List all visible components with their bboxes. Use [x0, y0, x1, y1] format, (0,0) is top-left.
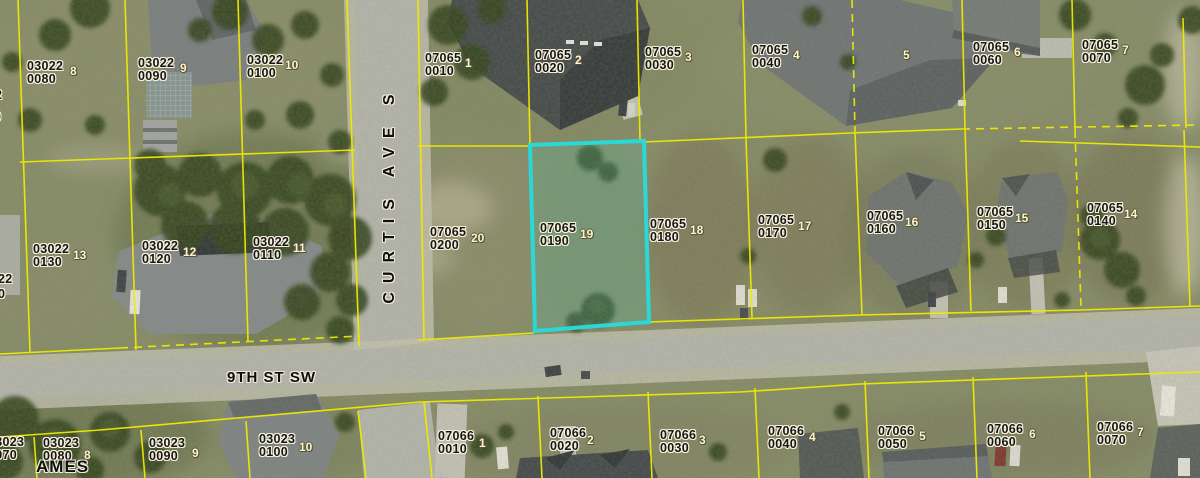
parcel-id-label: 030220090: [138, 57, 174, 83]
parcel-strap-line2: 0020: [535, 62, 571, 75]
parcel-strap-line2: 0060: [987, 436, 1023, 449]
lot-number-label: 12: [183, 245, 196, 259]
parcel-id-label: 030230090: [149, 437, 185, 463]
parcel-id-label: 070660060: [987, 423, 1023, 449]
parcel-id-label: 030230070: [0, 436, 24, 462]
parcel-strap-line2: 0020: [550, 440, 586, 453]
lot-number-label: 8: [70, 64, 77, 78]
parcel-id-label: 070650070: [1082, 39, 1118, 65]
lot-number-label: 17: [798, 219, 811, 233]
parcel-strap-line2: 0170: [758, 227, 794, 240]
parcel-id-label: 070660070: [1097, 421, 1133, 447]
parcel-id-label: 070650200: [430, 226, 466, 252]
parcel-strap-line2: 0070: [1097, 434, 1133, 447]
parcel-strap-line2: 0110: [253, 249, 289, 262]
parcel-id-label: 070650150: [977, 206, 1013, 232]
parcel-id-label: 030220110: [253, 236, 289, 262]
parcel-strap-line2: 0190: [540, 235, 576, 248]
lot-number-label: 16: [905, 215, 918, 229]
lot-number-label: 20: [471, 231, 484, 245]
lot-number-label: 3: [685, 50, 692, 64]
parcel-id-label: 070650160: [867, 210, 903, 236]
lot-number-label: 1: [465, 56, 472, 70]
map-labels-layer: 0302200808030220090903022010010070650010…: [0, 0, 1200, 478]
parcel-id-label: 070660020: [550, 427, 586, 453]
parcel-strap-line2: 0130: [33, 256, 69, 269]
parcel-id-label: 030220100: [247, 54, 283, 80]
partial-parcel-label: 22: [0, 273, 13, 286]
lot-number-label: 9: [192, 446, 199, 460]
parcel-strap-line2: 0010: [425, 65, 461, 78]
lot-number-label: 10: [299, 440, 312, 454]
lot-number-label: 5: [919, 429, 926, 443]
parcel-strap-line2: 0080: [27, 73, 63, 86]
parcel-strap-line2: 0090: [138, 70, 174, 83]
parcel-id-label: 070660040: [768, 425, 804, 451]
street-name-label: 9TH ST SW: [227, 369, 316, 386]
parcel-strap-line2: 0200: [430, 239, 466, 252]
lot-number-label: 13: [73, 248, 86, 262]
partial-parcel-label: 2: [0, 89, 2, 102]
parcel-id-label: 070650040: [752, 44, 788, 70]
lot-number-label: 7: [1122, 43, 1129, 57]
parcel-id-label: 070650030: [645, 46, 681, 72]
lot-number-label: 6: [1029, 427, 1036, 441]
parcel-strap-line2: 0100: [247, 67, 283, 80]
lot-number-label: 7: [1137, 425, 1144, 439]
lot-number-label: 14: [1124, 207, 1137, 221]
parcel-strap-line2: 0040: [752, 57, 788, 70]
lot-number-label: 11: [293, 241, 306, 255]
parcel-id-label: 070650170: [758, 214, 794, 240]
parcel-id-label: 070650060: [973, 41, 1009, 67]
partial-street-label: AMES: [36, 457, 89, 477]
gis-aerial-map[interactable]: 0302200808030220090903022010010070650010…: [0, 0, 1200, 478]
partial-parcel-label: 0: [0, 288, 5, 301]
parcel-id-label: 030220130: [33, 243, 69, 269]
parcel-id-label: 070650010: [425, 52, 461, 78]
parcel-strap-line2: 0030: [645, 59, 681, 72]
parcel-strap-line2: 0040: [768, 438, 804, 451]
parcel-strap-line2: 0160: [867, 223, 903, 236]
parcel-strap-line2: 0010: [438, 443, 474, 456]
parcel-strap-line2: 0050: [878, 438, 914, 451]
parcel-strap-line2: 0090: [149, 450, 185, 463]
lot-number-label: 19: [580, 227, 593, 241]
parcel-id-label: 030220080: [27, 60, 63, 86]
lot-number-label: 4: [809, 430, 816, 444]
lot-number-label: 10: [285, 58, 298, 72]
lot-number-label: 2: [575, 53, 582, 67]
lot-number-label: 2: [587, 433, 594, 447]
parcel-strap-line2: 0150: [977, 219, 1013, 232]
lot-number-label: 3: [699, 433, 706, 447]
lot-number-label: 15: [1015, 211, 1028, 225]
street-name-label: CURTIS AVE S: [381, 57, 399, 332]
parcel-id-label: 070650190: [540, 222, 576, 248]
parcel-strap-line2: 0030: [660, 442, 696, 455]
lot-number-label: 4: [793, 48, 800, 62]
parcel-id-label: 030220120: [142, 240, 178, 266]
parcel-id-label: 070660030: [660, 429, 696, 455]
parcel-id-label: 070650140: [1087, 202, 1123, 228]
parcel-strap-line2: 0140: [1087, 215, 1123, 228]
lot-number-label: 18: [690, 223, 703, 237]
parcel-strap-line2: 0070: [1082, 52, 1118, 65]
parcel-strap-line2: 0120: [142, 253, 178, 266]
parcel-id-label: 070650180: [650, 218, 686, 244]
parcel-strap-line2: 0100: [259, 446, 295, 459]
lot-number-label: 1: [479, 436, 486, 450]
parcel-id-label: 070660010: [438, 430, 474, 456]
lot-number-label: 9: [180, 61, 187, 75]
parcel-id-label: 070650020: [535, 49, 571, 75]
parcel-strap-line2: 0070: [0, 449, 24, 462]
lot-number-label: 5: [903, 48, 910, 62]
partial-parcel-label: 0: [0, 111, 1, 124]
parcel-strap-line2: 0060: [973, 54, 1009, 67]
parcel-id-label: 030230100: [259, 433, 295, 459]
parcel-id-label: 070660050: [878, 425, 914, 451]
parcel-strap-line2: 0180: [650, 231, 686, 244]
lot-number-label: 6: [1014, 45, 1021, 59]
